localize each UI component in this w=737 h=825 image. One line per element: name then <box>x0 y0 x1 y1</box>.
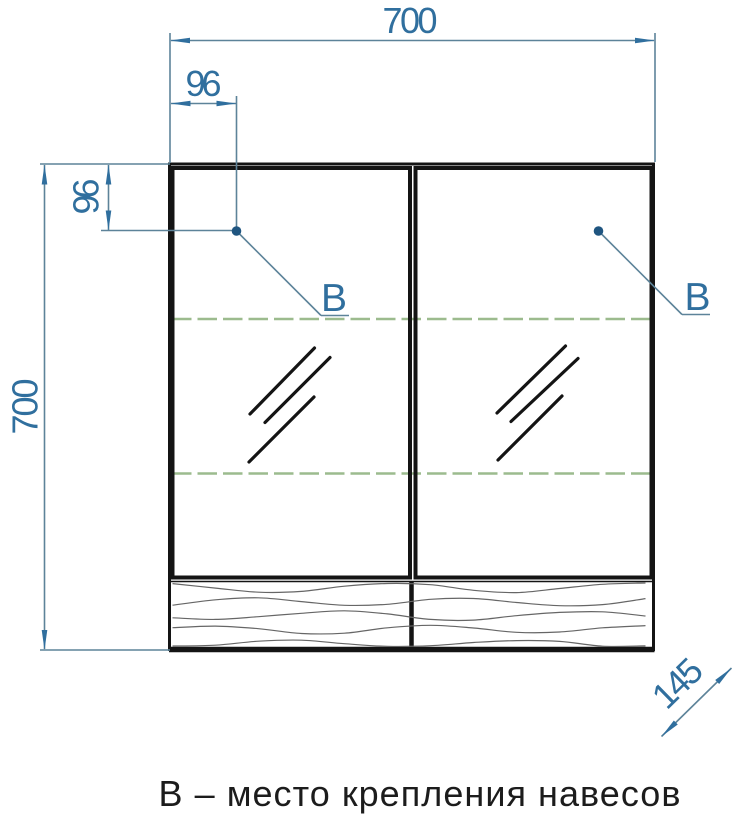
svg-text:96: 96 <box>186 63 222 104</box>
svg-text:700: 700 <box>5 379 46 435</box>
svg-text:B: B <box>321 277 347 320</box>
svg-text:96: 96 <box>66 179 107 215</box>
svg-text:B: B <box>684 276 710 319</box>
svg-text:700: 700 <box>383 0 438 41</box>
svg-text:В – место крепления навесов: В – место крепления навесов <box>159 773 681 814</box>
